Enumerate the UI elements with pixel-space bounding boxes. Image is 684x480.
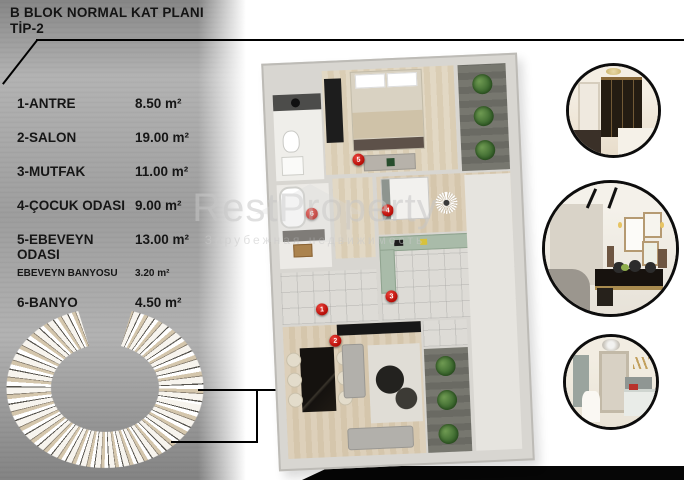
tv-console — [337, 321, 421, 336]
legend-row-salon: 2-SALON 19.00 m² — [17, 130, 227, 164]
mirror-icon — [293, 244, 313, 258]
bath-cabinet — [281, 156, 304, 176]
plant-icon — [472, 74, 493, 95]
kitchen-counter-side — [379, 249, 396, 294]
room-salon — [283, 321, 427, 459]
master-bed — [350, 69, 425, 152]
photo-master-bedroom — [566, 63, 661, 158]
chair-icon — [286, 352, 302, 368]
room-area: 19.00 m² — [135, 130, 189, 145]
page: B BLOK NORMAL KAT PLANI TİP-2 1-ANTRE 8.… — [0, 0, 684, 480]
bath-counter — [283, 229, 325, 242]
decor-box — [386, 158, 394, 166]
hallway-tiles — [280, 269, 378, 325]
room-antre — [332, 177, 375, 259]
room-label: 4-ÇOCUK ODASI — [17, 198, 135, 213]
balcony-top — [457, 63, 510, 171]
room-label: 2-SALON — [17, 130, 135, 145]
bottom-accent-bar — [302, 466, 684, 480]
kitchen-item — [420, 239, 427, 245]
chair-icon — [288, 392, 304, 408]
plant-icon — [435, 356, 456, 377]
rug — [368, 343, 423, 423]
chandelier-icon — [606, 68, 620, 75]
dresser — [363, 153, 416, 171]
pillow — [355, 73, 386, 88]
gray-sofa — [545, 269, 590, 314]
legend-row-antre: 1-ANTRE 8.50 m² — [17, 96, 227, 130]
sofa-horizontal — [347, 425, 414, 450]
white-blanket-chair — [582, 391, 600, 422]
room-area: 8.50 m² — [135, 96, 182, 111]
fruit-bowl — [621, 264, 629, 271]
sconce-icon — [660, 222, 664, 227]
room-banyo — [277, 183, 333, 269]
wall-strip — [464, 173, 522, 451]
dining-chair-front — [597, 288, 613, 306]
wardrobe — [324, 78, 344, 143]
hall-patch — [423, 319, 468, 347]
chandelier-icon — [435, 191, 458, 214]
bathtub-icon — [279, 186, 307, 229]
title-line-1: B BLOK NORMAL KAT PLANI — [10, 5, 220, 21]
bed-white — [618, 128, 658, 155]
connector-line-vertical — [256, 389, 258, 443]
room-ebeveyn-banyosu — [273, 93, 325, 181]
legend-row-ebeveyn-odasi: 5-EBEVEYN ODASI 13.00 m² — [17, 232, 227, 266]
statue — [658, 249, 667, 269]
toilet-icon — [282, 130, 300, 153]
room-area: 11.00 m² — [135, 164, 188, 179]
legend-row-mutfak: 3-MUTFAK 11.00 m² — [17, 164, 227, 198]
room-area-legend: 1-ANTRE 8.50 m² 2-SALON 19.00 m² 3-MUTFA… — [17, 96, 227, 329]
dining-table — [300, 347, 337, 412]
apartment-floorplan: 5 6 4 3 1 2 — [261, 53, 535, 472]
plant-icon — [438, 424, 459, 445]
balcony-bottom — [424, 347, 472, 453]
room-label: EBEVEYN BANYOSU — [17, 268, 135, 279]
room-label: 5-EBEVEYN ODASI — [17, 232, 135, 262]
sconce-icon — [618, 222, 622, 227]
connector-line-top — [198, 389, 280, 391]
room-area: 9.00 m² — [135, 198, 182, 213]
red-pillow — [629, 384, 638, 390]
wall-art-frame — [643, 212, 661, 238]
photo-dining-room — [542, 180, 679, 317]
page-title: B BLOK NORMAL KAT PLANI TİP-2 — [10, 5, 220, 37]
wall-branch-decor — [633, 357, 649, 370]
header-divider-line — [36, 39, 684, 41]
bed-foot-bench — [354, 137, 424, 151]
kids-bed — [624, 389, 656, 415]
statue — [607, 246, 615, 267]
plant-icon — [473, 106, 494, 127]
plant-icon — [475, 140, 496, 161]
room-label: 3-MUTFAK — [17, 164, 135, 179]
legend-row-cocuk-odasi: 4-ÇOCUK ODASI 9.00 m² — [17, 198, 227, 232]
blanket — [352, 110, 423, 139]
room-area: 3.20 m² — [135, 268, 169, 279]
room-area: 4.50 m² — [135, 295, 182, 310]
room-label: 1-ANTRE — [17, 96, 135, 111]
photo-kids-bedroom — [563, 334, 659, 430]
connector-line-bottom — [171, 441, 258, 443]
sofa-vertical — [342, 344, 366, 399]
pillow — [387, 72, 418, 87]
chair-icon — [287, 372, 303, 388]
room-area: 13.00 m² — [135, 232, 189, 247]
dark-furniture — [569, 130, 601, 155]
legend-row-ebeveyn-banyosu: EBEVEYN BANYOSU 3.20 m² — [17, 266, 227, 295]
title-line-2: TİP-2 — [10, 21, 220, 37]
door — [578, 82, 600, 135]
room-label: 6-BANYO — [17, 295, 135, 310]
plant-icon — [437, 390, 458, 411]
dining-chair — [629, 260, 641, 272]
cooktop-icon — [394, 240, 403, 246]
